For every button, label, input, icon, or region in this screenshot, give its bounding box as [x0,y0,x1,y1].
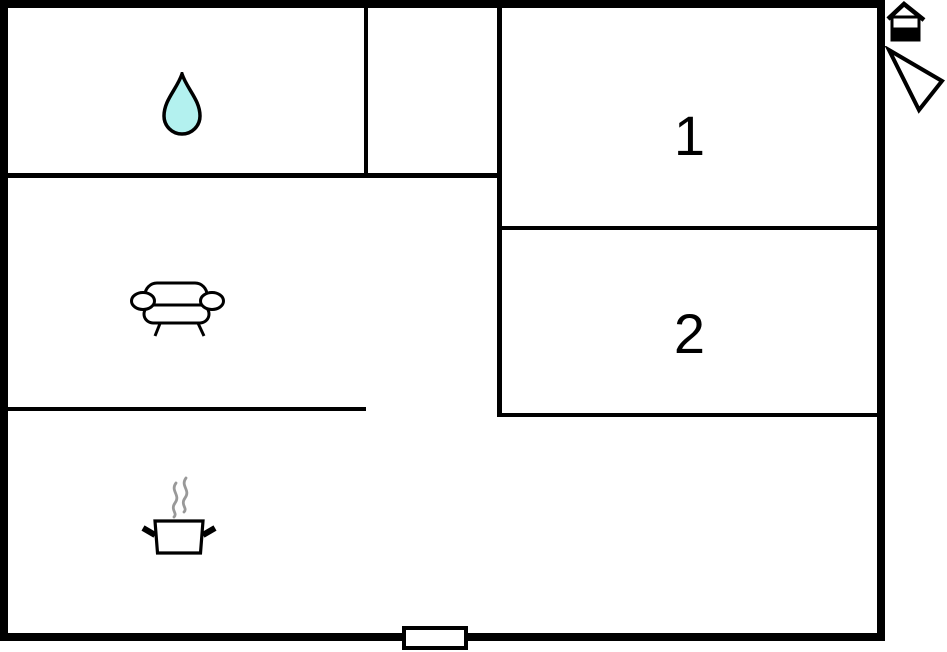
wall-living-kitchen-partial [0,407,366,411]
bathroom-marker [161,72,203,138]
house-marker [884,1,928,45]
entrance-door-marker [402,626,468,650]
wall-bathroom-right [364,0,368,177]
pot-handle-right [203,528,215,535]
wall-outer-top [0,0,885,8]
water-drop-icon [161,72,203,138]
wall-outer-left [0,0,8,641]
living-room-marker [130,276,226,338]
wall-room2-bottom [497,413,881,417]
steam-line-right [183,478,187,512]
kitchen-marker [138,474,220,558]
north-arrow-marker [885,46,947,114]
sofa-armrest-left [132,293,155,310]
floor-plan: 1 2 [0,0,947,652]
sofa-armrest-right [201,293,224,310]
house-base [892,28,919,41]
room-2-label: 2 [502,230,877,413]
house-icon [884,1,928,45]
room-1-label: 1 [502,8,877,227]
water-drop-shape [164,74,200,134]
steam-line-left [173,483,177,517]
pot-body [155,521,203,553]
wall-bathroom-bottom [0,173,502,178]
sofa-icon [130,276,226,338]
sofa-seat [144,305,209,323]
north-arrow-shape [889,50,942,110]
pot-handle-left [143,528,155,535]
wall-outer-right [877,0,885,641]
cooking-pot-icon [138,474,220,558]
north-arrow-icon [885,46,947,114]
